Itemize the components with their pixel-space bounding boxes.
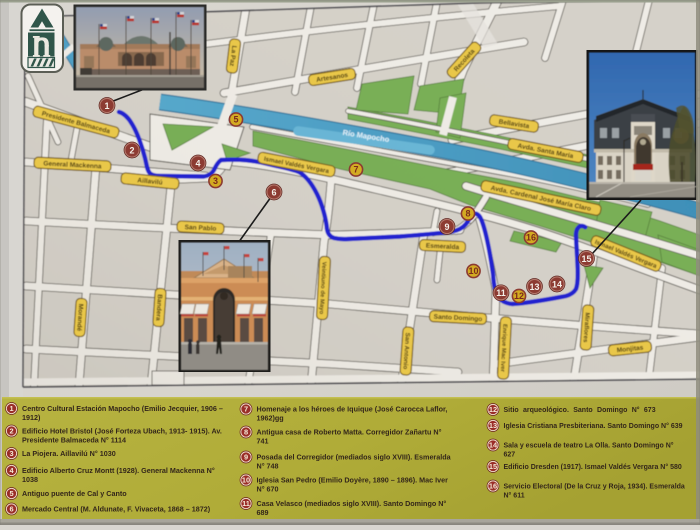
svg-text:14: 14 (489, 441, 498, 450)
svg-text:5: 5 (9, 489, 13, 498)
svg-text:3: 3 (9, 449, 13, 458)
svg-text:Antiguo puente de Cal y Canto: Antiguo puente de Cal y Canto (22, 489, 127, 498)
svg-text:15: 15 (581, 254, 591, 264)
svg-text:1: 1 (9, 404, 13, 413)
svg-text:12: 12 (489, 405, 497, 414)
svg-text:2: 2 (9, 427, 13, 436)
svg-text:14: 14 (552, 279, 562, 289)
svg-text:13: 13 (489, 421, 497, 430)
svg-text:3: 3 (213, 176, 218, 186)
svg-text:La Piojera. Aillavilú N° 1030: La Piojera. Aillavilú N° 1030 (22, 449, 116, 458)
svg-text:7: 7 (244, 405, 248, 414)
svg-text:11: 11 (242, 499, 250, 508)
svg-text:8: 8 (465, 209, 470, 219)
svg-text:11: 11 (496, 288, 506, 298)
svg-text:6: 6 (271, 187, 276, 197)
svg-text:8: 8 (244, 428, 248, 437)
svg-text:Edificio Dresden (1917). Ismae: Edificio Dresden (1917). Ismael Valdés V… (504, 463, 682, 471)
svg-text:16: 16 (526, 233, 536, 243)
svg-text:10: 10 (468, 266, 478, 276)
svg-text:10: 10 (242, 476, 250, 485)
svg-text:Mercado Central (M. Aldunate,: Mercado Central (M. Aldunate, F. Vivacet… (22, 505, 211, 514)
svg-text:Iglesia Cristiana Presbiterian: Iglesia Cristiana Presbiteriana. Santo D… (504, 422, 683, 430)
svg-text:2: 2 (129, 145, 134, 155)
svg-text:1: 1 (104, 101, 109, 111)
svg-text:9: 9 (244, 453, 248, 462)
svg-text:12: 12 (514, 291, 524, 301)
svg-text:16: 16 (489, 482, 497, 491)
svg-text:13: 13 (529, 282, 539, 292)
svg-text:4: 4 (195, 158, 200, 168)
svg-text:7: 7 (353, 165, 358, 175)
svg-text:15: 15 (489, 462, 497, 471)
svg-text:Sitio arqueológico. Santo Domi: Sitio arqueológico. Santo Domingo N° 673 (504, 406, 656, 414)
svg-text:5: 5 (233, 115, 238, 125)
svg-text:6: 6 (9, 505, 13, 514)
svg-text:9: 9 (444, 222, 449, 232)
